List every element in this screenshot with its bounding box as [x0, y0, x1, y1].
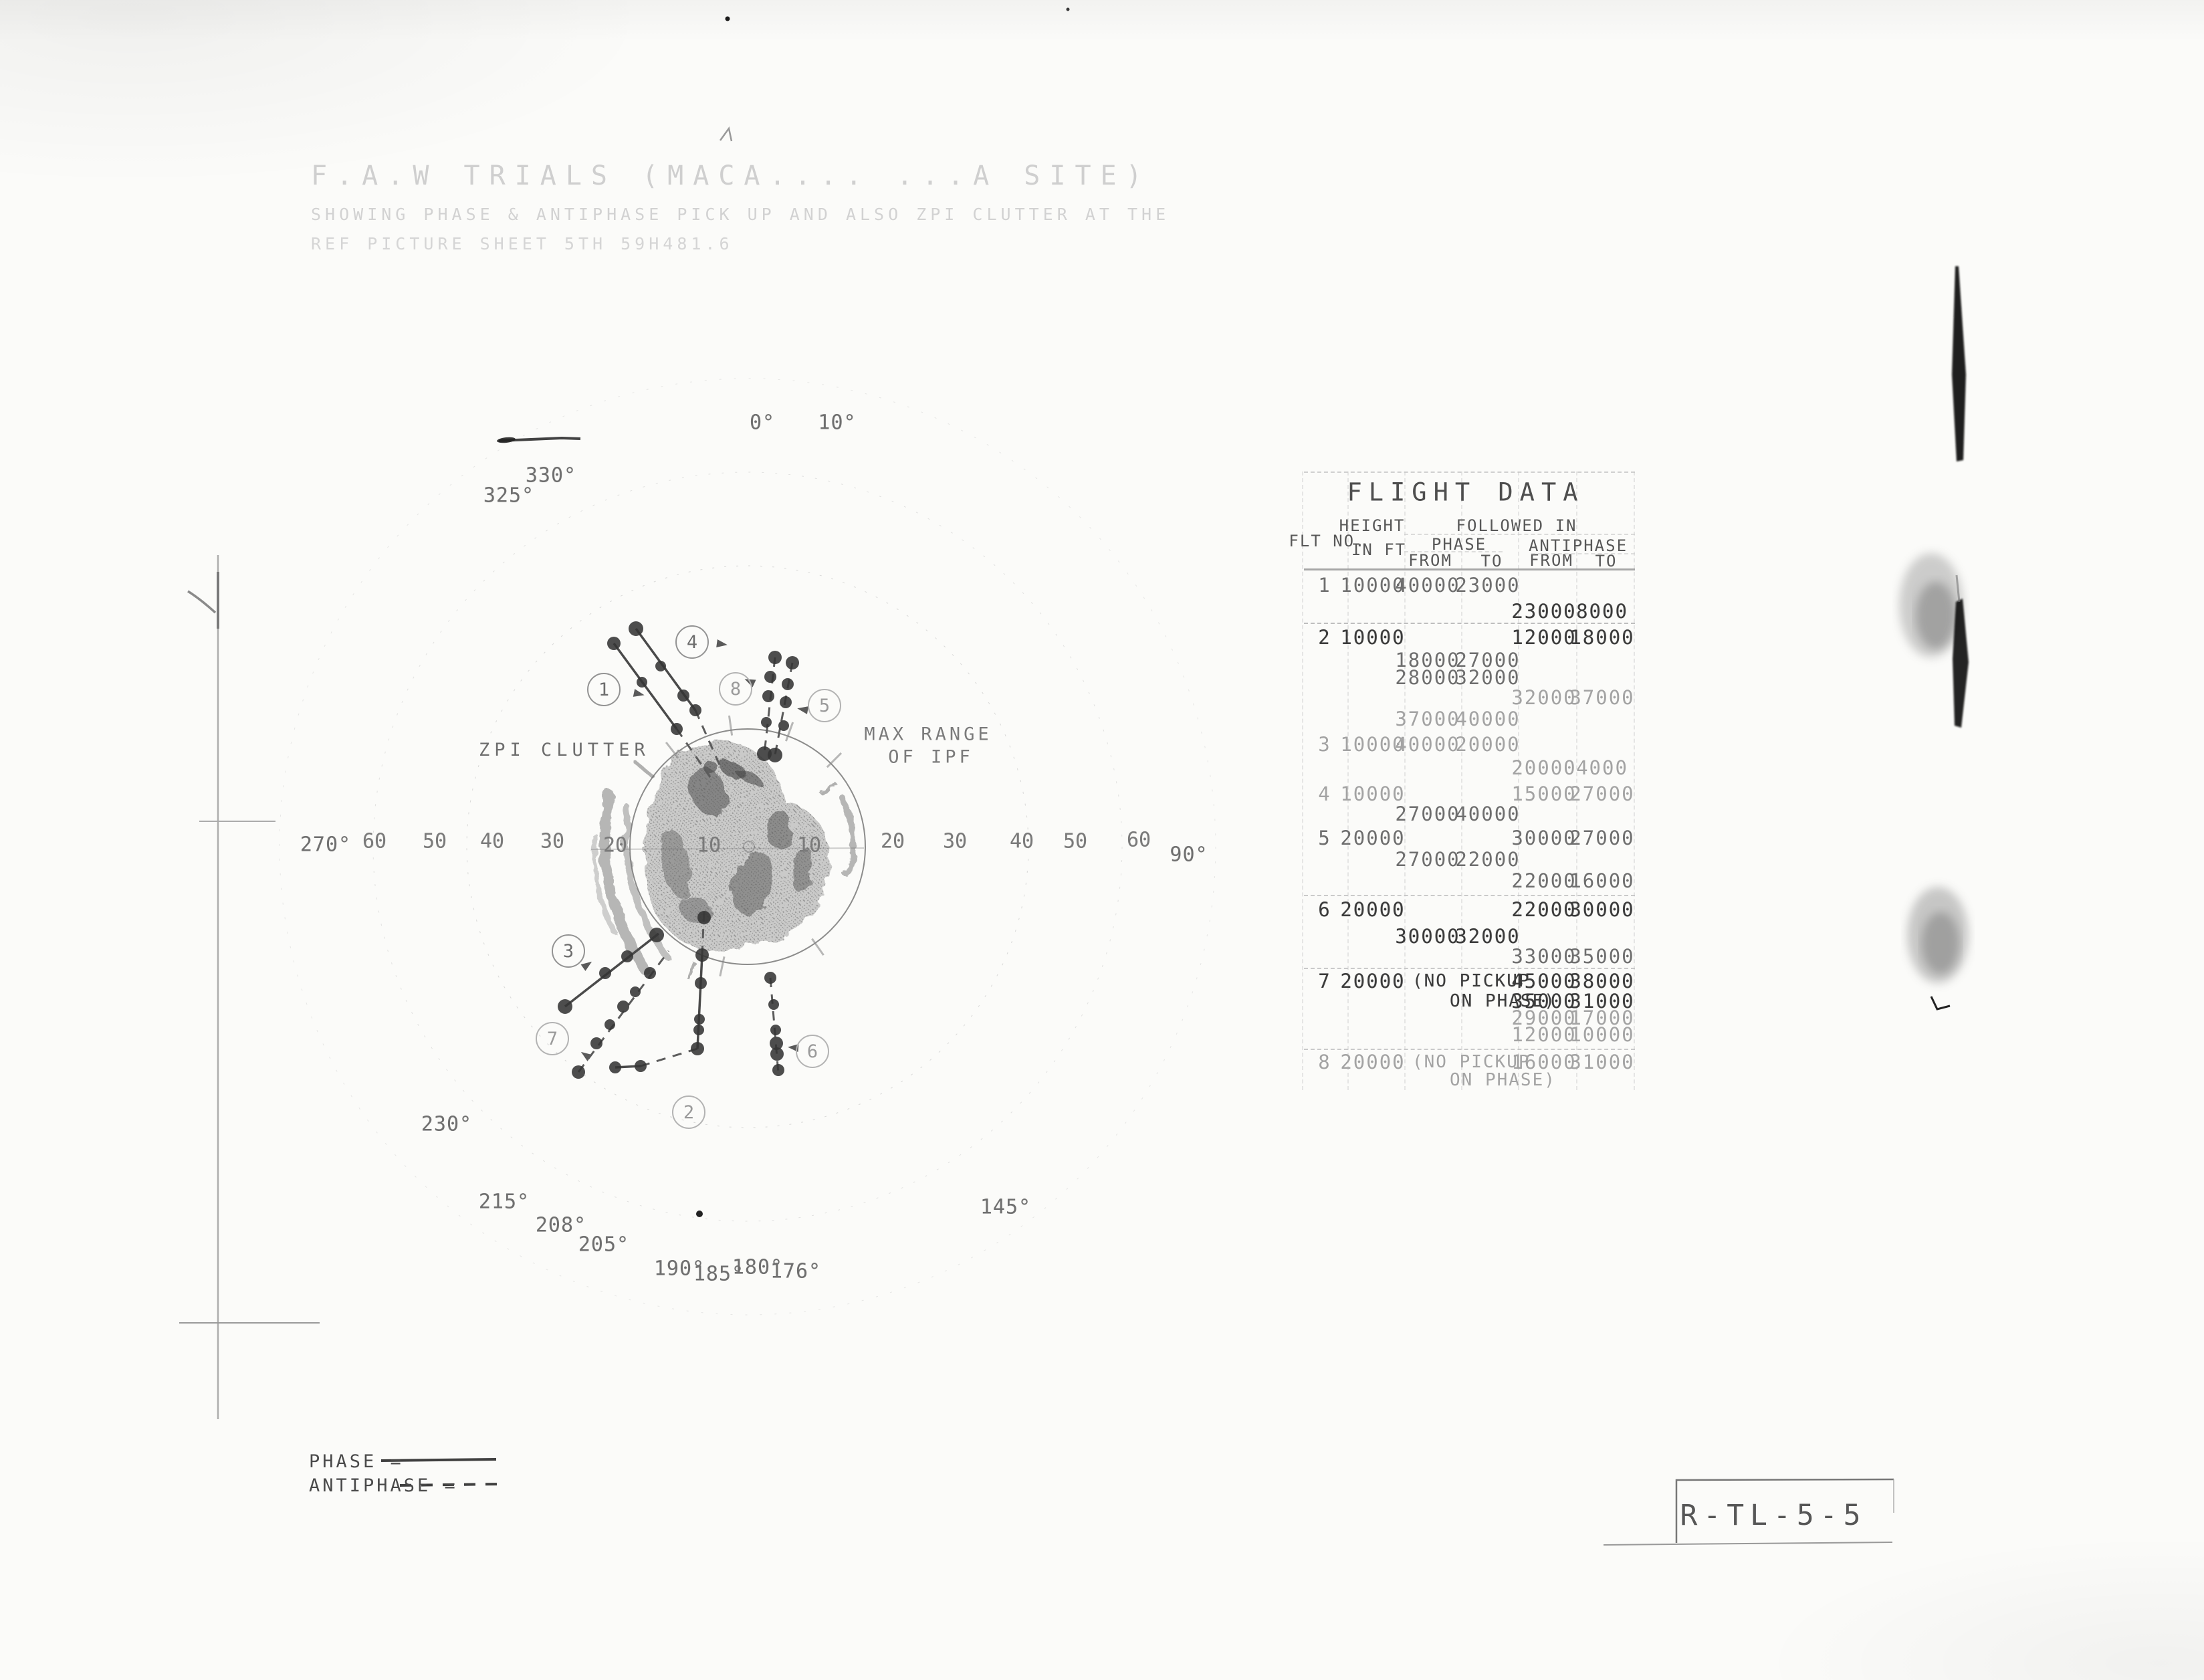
table-cell-at: 30000	[1569, 898, 1634, 921]
table-cell-af: 23000	[1511, 600, 1576, 623]
track-dot	[768, 748, 782, 762]
col-header-phase-to: TO	[1481, 552, 1503, 570]
table-cell-height: 10000	[1340, 626, 1405, 649]
col-header-height: HEIGHT	[1339, 516, 1406, 535]
track-dot	[780, 696, 792, 708]
track-dot	[677, 690, 689, 702]
track-dot	[786, 656, 799, 669]
track-dot	[770, 1047, 784, 1061]
table-cell-af: 30000	[1511, 827, 1576, 849]
table-rule	[1304, 623, 1635, 624]
track-dot	[778, 720, 789, 731]
table-cell-flt: 7	[1318, 970, 1331, 992]
angle-label: 0°	[750, 411, 775, 435]
track-dot	[621, 950, 633, 962]
flight-marker-4: 4	[675, 625, 709, 659]
table-cell-pf: 27000	[1395, 848, 1460, 871]
max-range-label-line1: MAX RANGE	[864, 724, 992, 745]
table-cell-at: 38000	[1569, 970, 1634, 992]
table-rule	[1404, 534, 1635, 535]
table-cell-flt: 6	[1318, 898, 1331, 921]
track-dot	[695, 948, 709, 962]
table-rule	[1304, 471, 1635, 473]
table-column-rule	[1302, 471, 1303, 1090]
track-dot	[630, 986, 641, 997]
table-cell-af: 12000	[1511, 626, 1576, 649]
table-cell-pf: 40000	[1395, 733, 1460, 756]
track-dot	[782, 678, 794, 690]
flight-marker-1: 1	[587, 673, 621, 706]
table-cell-at: 8000	[1576, 600, 1628, 623]
sheet-title-line3: REF PICTURE SHEET 5TH 59H481.6	[311, 234, 734, 253]
track-dot	[691, 1042, 704, 1055]
track-dot	[649, 928, 664, 942]
track-arrow-icon	[796, 704, 808, 714]
track-dot	[617, 1001, 629, 1013]
track-dot	[689, 704, 701, 716]
table-cell-at: 16000	[1569, 869, 1634, 892]
sheet-border-left	[179, 555, 320, 1419]
table-cell-flt: 5	[1318, 827, 1331, 849]
table-cell-at: 31000	[1569, 1051, 1634, 1073]
flight-marker-8: 8	[719, 672, 752, 706]
table-note: (NO PICKUP	[1412, 1052, 1531, 1072]
range-tick-label: 40	[1010, 830, 1034, 853]
table-cell-pf: 30000	[1395, 925, 1460, 948]
table-cell-flt: 4	[1318, 782, 1331, 805]
track-dot	[772, 1064, 784, 1076]
angle-label: 176°	[770, 1260, 821, 1283]
table-cell-flt: 2	[1318, 626, 1331, 649]
table-title: FLIGHT DATA	[1347, 478, 1584, 507]
track-dot	[693, 1025, 704, 1035]
track-dot	[761, 717, 772, 728]
table-rule	[1404, 551, 1503, 552]
table-cell-pt: 32000	[1455, 925, 1520, 948]
range-tick-label: 40	[480, 830, 504, 853]
track-dot	[629, 621, 643, 636]
range-tick-label: 60	[362, 830, 387, 853]
track-dot	[604, 1019, 615, 1030]
flight-marker-5: 5	[808, 689, 841, 722]
track-dot	[768, 651, 782, 664]
range-tick-label: 50	[1063, 830, 1087, 853]
track-dot	[694, 1014, 705, 1025]
table-cell-at: 10000	[1569, 1023, 1634, 1046]
drawing-number: R-TL-5-5	[1680, 1499, 1866, 1532]
track-flight-7	[572, 951, 669, 1079]
track-dot	[764, 972, 776, 984]
track-dot	[572, 1065, 585, 1079]
table-note: ON PHASE)	[1450, 1070, 1556, 1090]
table-rule	[1304, 568, 1635, 570]
range-tick-label: 30	[943, 830, 967, 853]
table-rule	[1531, 553, 1635, 554]
range-tick-label: 10	[797, 834, 821, 857]
table-cell-at: 27000	[1569, 782, 1634, 805]
dark-pencil-line	[497, 437, 580, 444]
range-tick-label: 10	[697, 834, 721, 857]
table-cell-pt: 40000	[1455, 708, 1520, 730]
table-cell-af: 20000	[1511, 756, 1576, 779]
ink-speck	[726, 17, 730, 21]
track-arrow-icon	[633, 689, 645, 699]
table-cell-pf: 28000	[1395, 666, 1460, 689]
table-cell-height: 20000	[1340, 827, 1405, 849]
flight-marker-2: 2	[672, 1095, 705, 1129]
table-cell-at: 18000	[1569, 626, 1634, 649]
track-dot	[558, 999, 572, 1014]
flight-marker-6: 6	[796, 1035, 829, 1068]
table-column-rule	[1347, 471, 1349, 1090]
range-tick-label: 20	[881, 830, 905, 853]
sheet-title-line2: SHOWING PHASE & ANTIPHASE PICK UP AND AL…	[311, 205, 1170, 224]
zpi-clutter-label: ZPI CLUTTER	[479, 740, 650, 760]
table-cell-pf: 27000	[1395, 803, 1460, 825]
table-cell-flt: 8	[1318, 1051, 1331, 1073]
angle-label: 230°	[421, 1113, 472, 1136]
col-header-anti-to: TO	[1595, 552, 1618, 570]
angle-label: 215°	[479, 1190, 530, 1214]
track-dot	[607, 637, 621, 650]
track-dot	[671, 723, 683, 735]
table-cell-at: 4000	[1576, 756, 1628, 779]
track-flight-8	[743, 651, 782, 761]
track-dot	[599, 967, 611, 979]
table-cell-height: 20000	[1340, 898, 1405, 921]
range-tick-label: 30	[540, 830, 564, 853]
table-cell-at: 35000	[1569, 945, 1634, 968]
track-arrow-icon	[716, 639, 728, 649]
track-dot	[762, 690, 774, 702]
range-tick-label: 20	[603, 834, 627, 857]
range-tick-label: 60	[1127, 829, 1151, 852]
scanned-drawing-sheet: { "header": { "line1": "F.A.W TRIALS (MA…	[0, 0, 2204, 1680]
max-range-label-line2: OF IPF	[888, 747, 974, 768]
col-header-phase-from: FROM	[1408, 551, 1452, 570]
table-cell-height: 10000	[1340, 782, 1405, 805]
table-cell-pt: 20000	[1455, 733, 1520, 756]
table-cell-af: 15000	[1511, 782, 1576, 805]
table-cell-af: 33000	[1511, 945, 1576, 968]
table-row-separator	[1304, 895, 1635, 896]
table-cell-pt: 22000	[1455, 848, 1520, 871]
range-tick-label: 50	[423, 830, 447, 853]
table-cell-pt: 32000	[1455, 666, 1520, 689]
table-cell-pf: 37000	[1395, 708, 1460, 730]
angle-label: 205°	[578, 1233, 629, 1257]
table-cell-pf: 40000	[1395, 574, 1460, 597]
track-dot	[697, 911, 711, 924]
track-dot	[764, 671, 776, 683]
angle-label: 10°	[818, 411, 856, 435]
track-arrow-icon	[581, 958, 594, 971]
table-row-separator	[1304, 968, 1635, 969]
table-cell-af: 12000	[1511, 1023, 1576, 1046]
track-dot	[609, 1061, 621, 1073]
table-cell-af: 32000	[1511, 686, 1576, 709]
table-cell-height: 20000	[1340, 1051, 1405, 1073]
angle-label: 270°	[300, 833, 351, 857]
track-dot	[770, 1025, 781, 1035]
table-cell-flt: 3	[1318, 733, 1331, 756]
pencil-check-mark	[720, 128, 732, 141]
angle-label: 145°	[980, 1196, 1031, 1219]
track-dot	[635, 1060, 647, 1072]
table-cell-height: 20000	[1340, 970, 1405, 992]
table-cell-at: 37000	[1569, 686, 1634, 709]
col-header-in-ft: IN FT	[1351, 540, 1406, 559]
track-dot	[644, 967, 656, 979]
table-cell-at: 27000	[1569, 827, 1634, 849]
track-dot	[695, 977, 707, 989]
track-dot	[655, 661, 666, 671]
film-artifacts	[1899, 266, 1969, 1009]
flight-marker-3: 3	[552, 934, 585, 968]
col-header-followed-in: FOLLOWED IN	[1456, 516, 1577, 535]
track-dot	[590, 1037, 602, 1049]
sheet-title-line1: F.A.W TRIALS (MACA.... ...A SITE)	[311, 161, 1151, 191]
table-cell-pt: 23000	[1455, 574, 1520, 597]
ink-dot-190	[696, 1211, 703, 1217]
angle-label: 90°	[1170, 843, 1208, 867]
pencil-l-mark	[1931, 996, 1950, 1009]
table-cell-pt: 40000	[1455, 803, 1520, 825]
legend-antiphase-label: ANTIPHASE =	[309, 1475, 458, 1496]
track-dot	[768, 999, 779, 1010]
track-flight-6	[764, 972, 799, 1076]
table-cell-flt: 1	[1318, 574, 1331, 597]
legend-phase-label: PHASE =	[309, 1451, 404, 1472]
table-column-rule	[1404, 471, 1406, 1090]
table-row-separator	[1304, 1049, 1635, 1050]
angle-label: 325°	[483, 484, 534, 508]
table-note: (NO PICKUP	[1412, 971, 1531, 991]
track-arrow-icon	[578, 1049, 592, 1061]
track-dot	[637, 677, 647, 688]
table-cell-af: 22000	[1511, 869, 1576, 892]
ink-speck	[1067, 8, 1070, 11]
table-cell-af: 22000	[1511, 898, 1576, 921]
flight-marker-7: 7	[536, 1022, 569, 1055]
